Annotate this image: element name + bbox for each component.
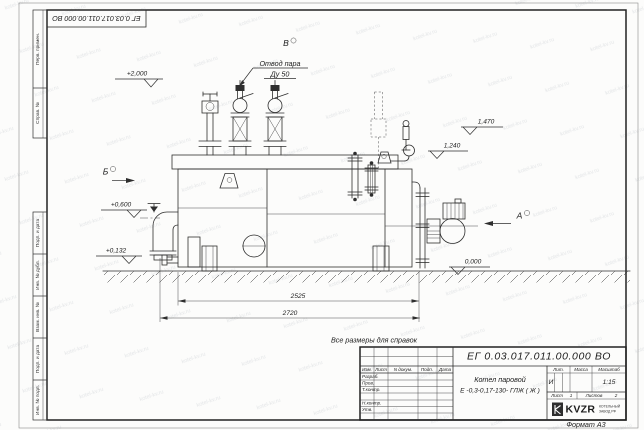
blowdown-pipe — [412, 182, 429, 268]
drawing-sheet: kotel-kv.ru kotel-kv.ru ЕГ 0.03.017.011.… — [0, 0, 644, 430]
title-doc-number: ЕГ 0.03.017.011.00.000 ВО — [467, 351, 611, 363]
boiler-body — [140, 155, 478, 267]
sensor-dashed-outline — [371, 92, 386, 168]
dimension-2525: 2525 — [290, 293, 306, 300]
svg-text:+2,000: +2,000 — [127, 71, 148, 78]
lit-label: Лит. — [552, 367, 564, 372]
manhole — [242, 235, 266, 257]
elevation-2000: +2,000 — [115, 71, 163, 88]
safety-valve-2 — [264, 81, 288, 156]
lit-value: И — [549, 379, 554, 386]
dimension-2720: 2720 — [282, 310, 298, 317]
sheets-label: Листов — [585, 393, 603, 398]
level-probe — [402, 121, 410, 151]
level-gauge — [348, 152, 391, 202]
svg-text:А: А — [516, 211, 523, 221]
row-tkontr: Т.контр. — [362, 387, 381, 392]
svg-text:0,000: 0,000 — [465, 259, 482, 266]
elevation-1240: 1,240 — [428, 143, 468, 159]
masshtab-label: Масштаб — [598, 367, 620, 372]
row-prov: Пров. — [362, 381, 374, 386]
svg-text:+0,132: +0,132 — [106, 248, 127, 255]
sheet-label: Лист — [550, 393, 563, 398]
scale-value: 1:15 — [603, 379, 616, 386]
elevation-marks: +2,000 +0,600 +0,132 1,470 1,240 0,000 — [96, 71, 503, 275]
product-name: Котел паровой — [474, 375, 526, 384]
product-designation: Е -0,3-0,17-130- ГЛЖ ( Ж ) — [460, 388, 540, 395]
col-dokum: N докум. — [394, 367, 413, 372]
elevation-0600: +0,600 — [101, 202, 147, 218]
side-cell-label: Перв. примен. — [35, 33, 41, 65]
support-legs — [188, 237, 389, 271]
row-utv: Утв. — [362, 407, 372, 412]
company-tagline-1: КОТЕЛЬНЫЙ — [599, 405, 621, 409]
side-column: Перв. примен. Справ. № Подп. и дата Инв.… — [33, 10, 47, 420]
steam-outlet-callout: Отвод пара Ду 50 — [239, 59, 308, 87]
boiler-side-view — [103, 81, 630, 283]
svg-text:+0,600: +0,600 — [111, 202, 132, 209]
side-cell-label: Справ. № — [35, 102, 41, 124]
company-logo: KVZR КОТЕЛЬНЫЙ ЗАВОД РФ — [552, 403, 621, 417]
corner-stamp: ЕГ 0.03.017.011.00.000 ВО — [47, 10, 146, 27]
svg-text:Ду 50: Ду 50 — [270, 70, 290, 79]
ground-line — [103, 271, 630, 283]
stop-valve — [199, 92, 221, 155]
col-izm: Изм. — [362, 367, 372, 372]
view-marker-b: Б — [103, 166, 135, 183]
view-marker-a: А — [484, 210, 530, 226]
side-cell-label: Инв. № дубл. — [35, 260, 41, 290]
row-nkontr: Н.контр. — [362, 401, 381, 406]
svg-text:Б: Б — [103, 167, 109, 177]
format-label: Формат А3 — [566, 420, 605, 429]
reference-note: Все размеры для справок — [331, 336, 418, 345]
sheet-graphics: ЕГ 0.03.017.011.00.000 ВО Перв. примен. … — [0, 0, 644, 430]
view-markers: Б А В — [103, 38, 530, 226]
dimension-lines: 2525 2720 — [160, 258, 420, 322]
side-cell-label: Инв. № подл. — [35, 385, 41, 415]
svg-text:В: В — [283, 38, 289, 48]
svg-text:Отвод пара: Отвод пара — [259, 59, 300, 68]
sheet-border — [19, 3, 638, 428]
col-podp: Подп. — [421, 367, 433, 372]
massa-label: Масса — [574, 367, 588, 372]
burner — [427, 199, 465, 244]
company-tagline-2: ЗАВОД РФ — [599, 410, 616, 414]
elevation-0132: +0,132 — [96, 248, 142, 264]
sheets-value: 2 — [614, 393, 618, 398]
side-cell-label: Подп. и дата — [35, 219, 41, 248]
pressure-gauge — [391, 145, 415, 161]
sheet-value: 1 — [570, 393, 573, 398]
row-razrab: Разраб. — [362, 374, 379, 379]
company-logo-text: KVZR — [566, 404, 596, 416]
col-list: Лист — [374, 367, 387, 372]
elevation-1470: 1,470 — [461, 119, 503, 135]
view-marker-v: В — [283, 38, 296, 48]
drain-elbow — [148, 204, 178, 266]
col-data: Дата — [438, 367, 452, 372]
side-cell-label: Подп. и дата — [35, 345, 41, 374]
svg-text:1,240: 1,240 — [444, 143, 461, 150]
corner-stamp-doc-number: ЕГ 0.03.017.011.00.000 ВО — [52, 14, 141, 23]
safety-valve-1 — [229, 81, 253, 156]
side-cell-label: Взам. инв. № — [35, 302, 41, 332]
svg-text:1,470: 1,470 — [478, 119, 495, 126]
title-block: Изм. Лист N докум. Подп. Дата Разраб. Пр… — [360, 347, 626, 420]
